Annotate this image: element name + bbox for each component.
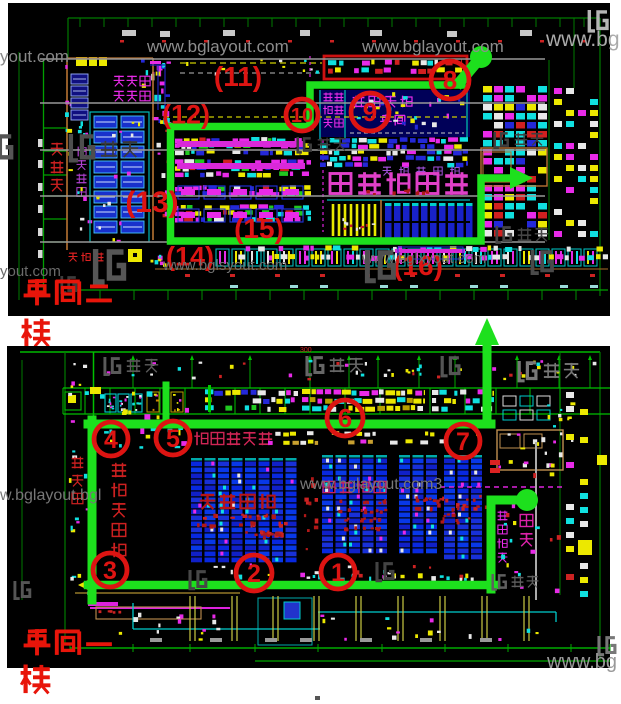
svg-text:300: 300 <box>300 347 312 354</box>
svg-text:www.bglayout.com: www.bglayout.com <box>146 37 289 56</box>
svg-text:yout.com: yout.com <box>0 47 69 66</box>
svg-text:www.bglsyout.com: www.bglsyout.com <box>162 257 287 274</box>
svg-text:8: 8 <box>443 65 457 95</box>
svg-text:5: 5 <box>166 425 180 453</box>
svg-text:4: 4 <box>104 426 118 454</box>
svg-text:(11): (11) <box>214 61 262 92</box>
svg-text:(13): (13) <box>125 186 178 219</box>
svg-text:6: 6 <box>338 403 352 433</box>
svg-text:w.bglayout.bgl: w.bglayout.bgl <box>0 487 101 504</box>
svg-text:10: 10 <box>291 105 313 127</box>
svg-text:www.bglayout.com: www.bglayout.com <box>361 37 504 56</box>
svg-text:(15): (15) <box>234 213 284 244</box>
svg-text:www.bg: www.bg <box>546 651 617 673</box>
svg-text:7: 7 <box>456 428 470 456</box>
svg-text:www.bglayout.com3: www.bglayout.com3 <box>299 476 442 493</box>
svg-text:9: 9 <box>363 97 377 127</box>
svg-text:1: 1 <box>331 559 345 587</box>
svg-text:3: 3 <box>103 557 117 585</box>
svg-text:(12): (12) <box>162 100 210 130</box>
svg-text:www.bg: www.bg <box>545 28 620 51</box>
svg-text:2: 2 <box>247 560 261 588</box>
svg-text:yout.com: yout.com <box>0 263 61 280</box>
